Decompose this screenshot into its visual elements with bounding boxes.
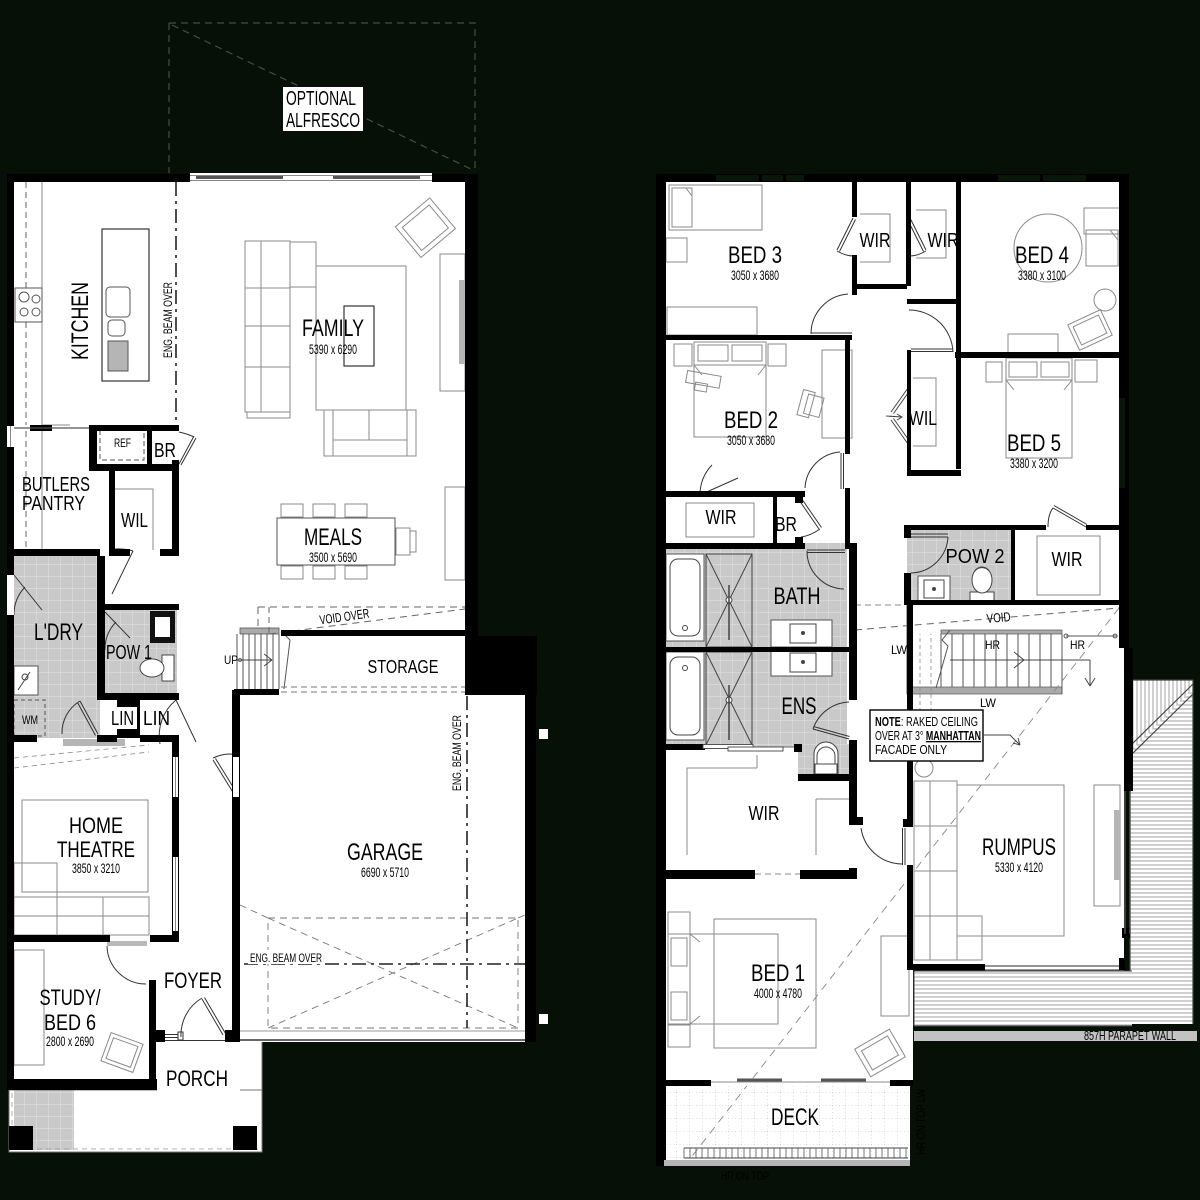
svg-text:STORAGE: STORAGE (368, 657, 439, 677)
svg-text:WIR: WIR (1052, 549, 1083, 571)
svg-text:3500 x 5690: 3500 x 5690 (309, 549, 357, 565)
svg-text:L'DRY: L'DRY (34, 619, 83, 646)
svg-text:LW: LW (891, 643, 908, 657)
svg-text:BED 3: BED 3 (728, 242, 782, 269)
svg-text:4000 x 4780: 4000 x 4780 (754, 985, 802, 1001)
svg-text:BR: BR (154, 440, 176, 462)
svg-text:6690 x 5710: 6690 x 5710 (361, 864, 409, 880)
svg-text:5390 x 6290: 5390 x 6290 (309, 341, 357, 357)
svg-text:MEALS: MEALS (304, 524, 362, 551)
svg-text:ALFRESCO: ALFRESCO (286, 110, 360, 132)
svg-text:UP: UP (224, 653, 238, 667)
svg-text:BED 6: BED 6 (44, 1010, 96, 1035)
svg-text:LW: LW (980, 696, 997, 710)
svg-text:KITCHEN: KITCHEN (67, 282, 94, 360)
svg-text:WIR: WIR (928, 230, 959, 252)
svg-text:ENG. BEAM OVER: ENG. BEAM OVER (450, 715, 464, 791)
svg-text:RUMPUS: RUMPUS (982, 834, 1056, 861)
svg-text:LIN: LIN (111, 708, 134, 730)
svg-text:857H PARAPET WALL: 857H PARAPET WALL (1084, 1028, 1176, 1043)
svg-text:OPTIONAL: OPTIONAL (286, 88, 356, 110)
svg-text:ENG. BEAM OVER: ENG. BEAM OVER (161, 282, 175, 358)
svg-text:WIR: WIR (749, 803, 780, 825)
svg-text:DECK: DECK (771, 1104, 819, 1131)
svg-text:2800 x 2690: 2800 x 2690 (46, 1033, 94, 1049)
svg-text:OVER AT 3° MANHATTAN: OVER AT 3° MANHATTAN (875, 728, 981, 743)
svg-text:HR ON TOP: HR ON TOP (721, 1169, 769, 1183)
svg-text:BED 4: BED 4 (1015, 242, 1069, 269)
svg-text:WM: WM (22, 713, 38, 727)
svg-text:BED 1: BED 1 (751, 960, 805, 987)
svg-text:LIN: LIN (143, 708, 170, 730)
svg-text:REF: REF (114, 436, 131, 450)
svg-text:VOID: VOID (986, 609, 1011, 626)
svg-text:POW 1: POW 1 (106, 642, 152, 664)
svg-text:5330 x 4120: 5330 x 4120 (995, 859, 1043, 875)
svg-text:HR ON TOP LW: HR ON TOP LW (914, 1088, 928, 1155)
svg-text:GARAGE: GARAGE (347, 839, 423, 866)
svg-text:NOTE: RAKED CEILING: NOTE: RAKED CEILING (875, 714, 978, 729)
svg-text:STUDY/: STUDY/ (40, 985, 102, 1010)
svg-text:PANTRY: PANTRY (22, 493, 85, 515)
svg-text:BED 5: BED 5 (1007, 430, 1061, 457)
svg-text:ENG. BEAM OVER: ENG. BEAM OVER (250, 951, 322, 965)
svg-text:3050 x 3680: 3050 x 3680 (731, 267, 779, 283)
svg-text:POW 2: POW 2 (946, 546, 1005, 568)
svg-text:HOME: HOME (69, 813, 123, 838)
svg-text:FACADE ONLY: FACADE ONLY (875, 742, 947, 757)
svg-text:WIL: WIL (909, 408, 937, 430)
svg-text:THEATRE: THEATRE (57, 837, 135, 862)
svg-text:HR: HR (985, 638, 1000, 652)
svg-text:WIR: WIR (706, 507, 737, 529)
svg-text:ENS: ENS (782, 693, 817, 720)
svg-text:3380 x 3200: 3380 x 3200 (1010, 455, 1058, 471)
svg-text:FAMILY: FAMILY (302, 315, 364, 342)
svg-text:3050 x 3680: 3050 x 3680 (727, 432, 775, 448)
svg-text:BR: BR (775, 514, 797, 536)
svg-text:WIL: WIL (121, 510, 148, 532)
svg-text:PORCH: PORCH (166, 1066, 228, 1091)
svg-text:3380 x 3100: 3380 x 3100 (1018, 267, 1066, 283)
svg-text:BATH: BATH (774, 583, 821, 610)
svg-text:HR: HR (1070, 638, 1085, 652)
svg-text:WIR: WIR (860, 230, 891, 252)
svg-text:FOYER: FOYER (164, 968, 222, 993)
svg-text:3850 x 3210: 3850 x 3210 (72, 860, 120, 876)
svg-text:BED 2: BED 2 (724, 407, 778, 434)
